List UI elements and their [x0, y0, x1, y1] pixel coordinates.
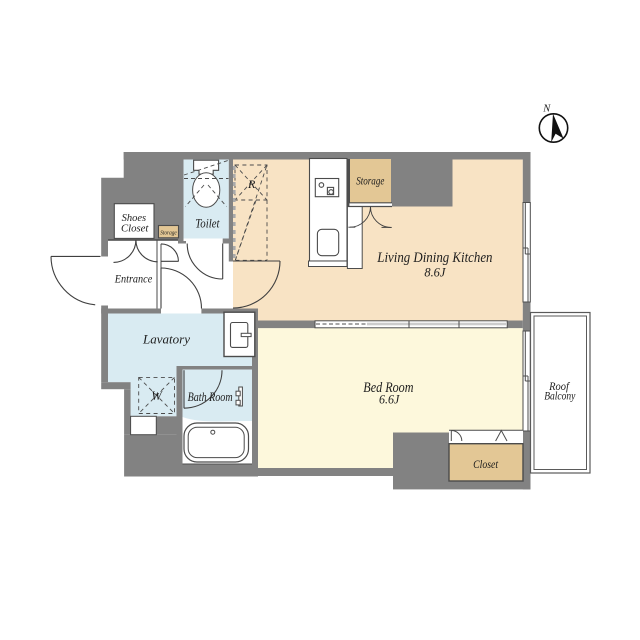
svg-text:Living Dining Kitchen: Living Dining Kitchen	[376, 250, 492, 266]
svg-text:8.6J: 8.6J	[424, 265, 446, 280]
svg-text:Closet: Closet	[121, 223, 149, 235]
svg-text:Storage: Storage	[160, 231, 177, 237]
svg-text:Lavatory: Lavatory	[142, 333, 191, 347]
svg-text:N: N	[542, 104, 551, 115]
svg-text:Toilet: Toilet	[195, 217, 220, 231]
svg-text:Bath Room: Bath Room	[188, 390, 233, 404]
svg-text:R: R	[247, 177, 256, 191]
svg-text:Storage: Storage	[356, 176, 384, 188]
svg-text:Closet: Closet	[473, 457, 499, 471]
svg-text:Balcony: Balcony	[544, 391, 576, 403]
svg-text:6.6J: 6.6J	[379, 392, 400, 407]
svg-text:Entrance: Entrance	[114, 271, 153, 285]
svg-text:W: W	[151, 389, 163, 403]
